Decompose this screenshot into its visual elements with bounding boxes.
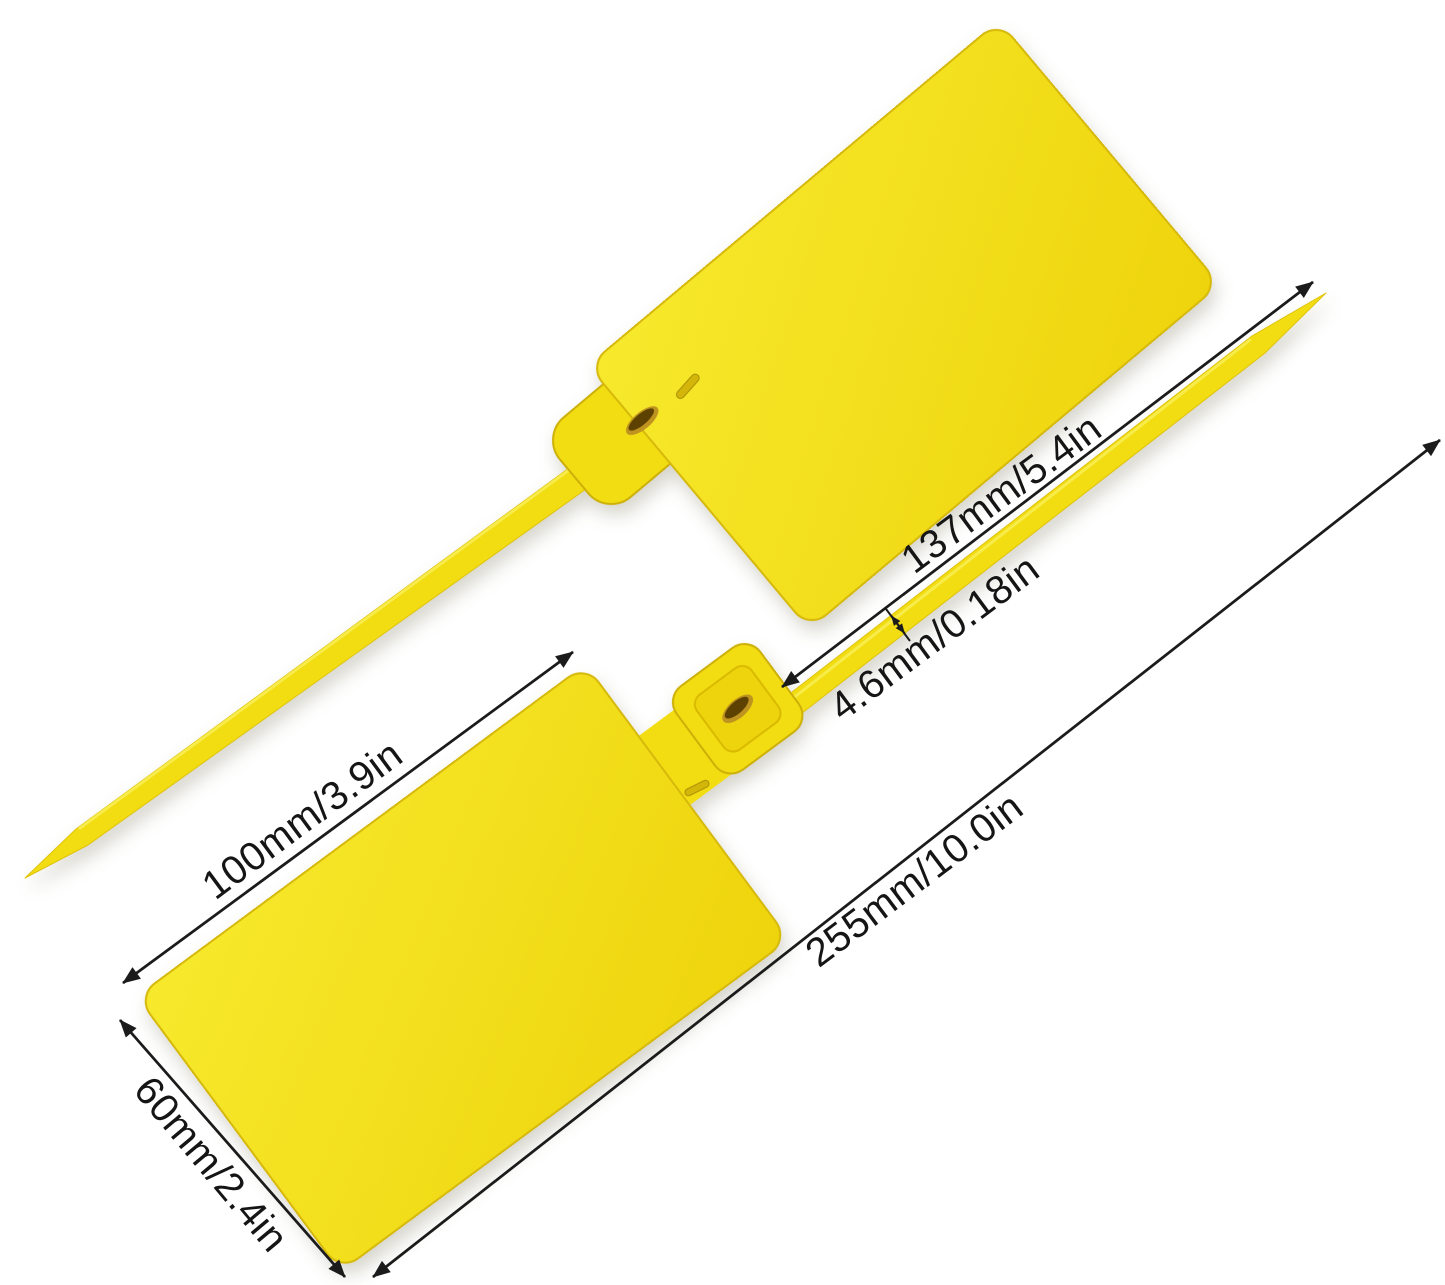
product-image: 137mm/5.4in 4.6mm/0.18in 100mm/3.9in 255… [0,0,1445,1285]
product-photo-svg: 137mm/5.4in 4.6mm/0.18in 100mm/3.9in 255… [0,0,1445,1285]
tag-top-plate-group [525,21,1220,682]
dim-label-total-length: 255mm/10.0in [798,784,1032,975]
